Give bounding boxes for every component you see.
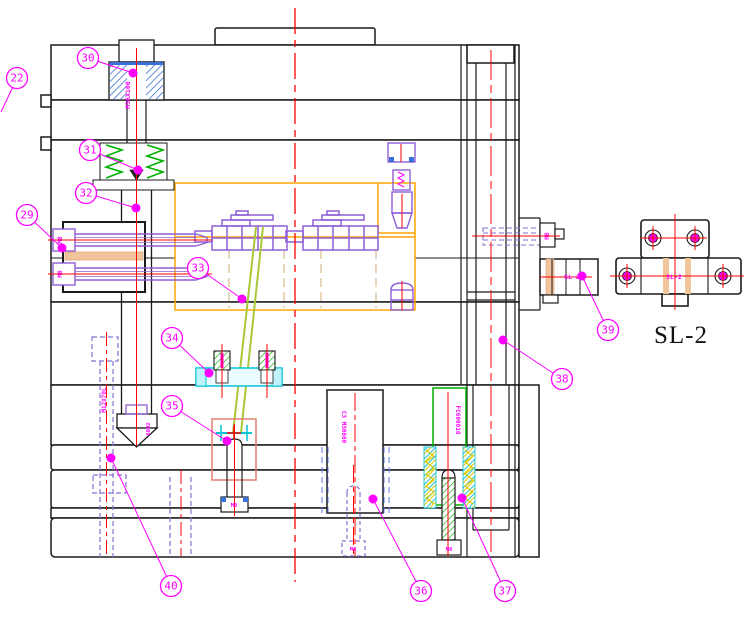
balloon-number: 22	[10, 72, 23, 85]
balloon-number: 40	[164, 580, 177, 593]
balloon-number: 32	[79, 187, 92, 200]
leader-dot	[499, 336, 508, 345]
slide-lock-side-view	[540, 259, 598, 303]
balloon-number: 31	[83, 144, 96, 157]
runner-plate	[51, 100, 519, 140]
guide-bolt-size-label: M8	[446, 547, 453, 553]
leader-dot	[223, 437, 232, 446]
balloon-number: 39	[601, 324, 614, 337]
leader-dot	[578, 272, 587, 281]
leader-dot	[134, 166, 143, 175]
leader-dot	[205, 369, 214, 378]
leader-dot	[238, 295, 247, 304]
balloon-number: 36	[414, 585, 427, 598]
balloon-number: 38	[555, 373, 568, 386]
right-support-rail	[519, 385, 539, 557]
leader-dot	[369, 495, 378, 504]
balloon-number: 30	[81, 52, 94, 65]
puller-bolt-spec-label: M36X100	[124, 81, 132, 108]
hidden-bolt-spec-label: M12X70L	[101, 387, 108, 413]
stop-bolt-size-label: M8	[544, 232, 551, 240]
balloon-number: 33	[191, 262, 204, 275]
balloon-number: 29	[20, 209, 33, 222]
leader-dot	[58, 244, 67, 253]
balloon-number: 35	[165, 400, 178, 413]
clamp-bolt-size-bottom-label: M8	[57, 270, 64, 278]
balloon-number: 37	[498, 585, 511, 598]
left-clamp-tab-lower	[41, 137, 51, 150]
ejector-retainer-plate	[51, 445, 519, 470]
leader-dot	[132, 204, 141, 213]
center-block-code-label: C3 M30600	[340, 411, 347, 444]
balloon-22: 22	[1, 68, 28, 113]
leader-dot	[458, 494, 467, 503]
wear-strip	[65, 252, 143, 260]
balloon-number: 34	[165, 332, 179, 345]
slide-lock-tag-label: SL-2	[564, 273, 580, 281]
wedge-bolt-size-label: M8	[231, 503, 238, 509]
mold-assembly-drawing: SL-2 M36X100M8M8M8M8M8M8M12X70L6002C3 M3…	[0, 0, 745, 619]
left-clamp-tab-upper	[41, 95, 51, 107]
detail-caption: SL-2	[654, 322, 708, 349]
slide-lock-detail-tag-label: SL-2	[666, 273, 682, 281]
center-bolt-size-label: M8	[350, 547, 357, 553]
cad-drawing-page: SL-2 M36X100M8M8M8M8M8M8M12X70L6002C3 M3…	[0, 0, 745, 619]
leader-dot	[129, 69, 138, 78]
leader-dot	[107, 454, 116, 463]
sl2-detail-view	[610, 214, 744, 310]
guide-block-code-label: FC600010	[454, 406, 461, 435]
tip-part-code-label: 6002	[146, 422, 152, 435]
clamp-bolt-size-top-label: M8	[57, 236, 64, 244]
